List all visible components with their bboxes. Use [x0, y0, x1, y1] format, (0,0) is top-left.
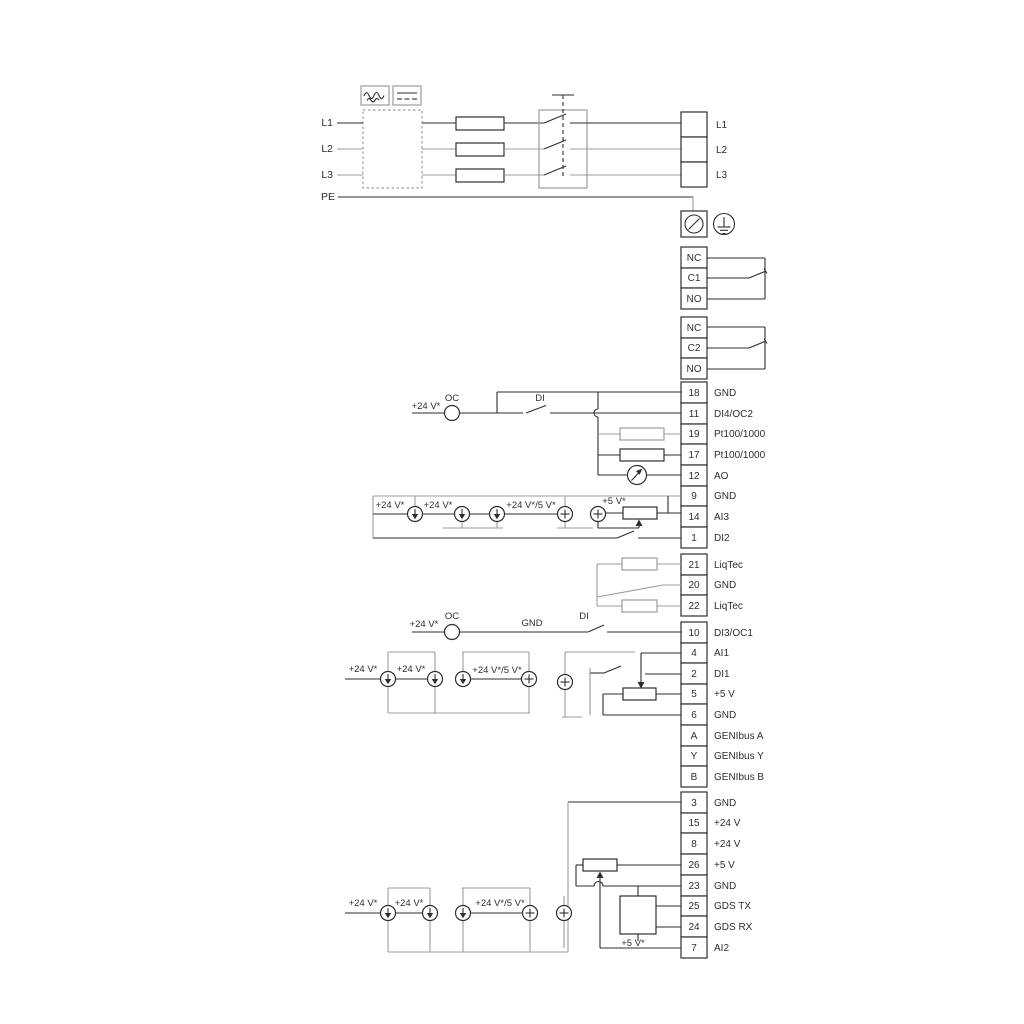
di3-oc1-circuit: +24 V* OC GND DI — [410, 611, 681, 640]
liqtec-circuit — [597, 558, 681, 612]
v5-label: +5 V* — [621, 938, 645, 949]
ai2-gds-circuit: +24 V* +24 V* +24 V*/5 V* +5 V* — [345, 802, 681, 952]
terminal-block-group4: 3GND 15+24 V 8+24 V 26+5 V 23GND 25GDS T… — [681, 792, 753, 958]
current-source-icon — [381, 906, 396, 921]
terminal-block-group1: 18GND 11DI4/OC2 19Pt100/1000 17Pt100/100… — [681, 382, 766, 548]
terminal-label: GND — [714, 491, 736, 502]
terminal-number: 21 — [688, 560, 700, 571]
v24-label: +24 V* — [410, 619, 439, 630]
current-source-icon — [456, 672, 471, 687]
terminal-number: 7 — [691, 943, 697, 954]
terminal-label: GDS RX — [714, 922, 753, 933]
oc-circle-icon — [445, 625, 460, 640]
oc-label: OC — [445, 393, 459, 404]
voltage-source-icon — [523, 906, 538, 921]
di2-switch — [617, 531, 634, 538]
terminal-number: B — [691, 772, 698, 783]
current-source-icon — [456, 906, 471, 921]
pin-label-l1: L1 — [321, 117, 333, 129]
terminal-number: 18 — [688, 388, 700, 399]
v5-label: +5 V* — [602, 496, 626, 507]
terminal-number: 26 — [688, 860, 700, 871]
voltage-source-icon — [557, 906, 572, 921]
v24-label: +24 V* — [349, 898, 378, 909]
terminal-label: AI3 — [714, 512, 729, 523]
relay2-contact — [707, 327, 767, 369]
terminal-label: DI4/OC2 — [714, 409, 753, 420]
terminal-number: NC — [687, 253, 701, 264]
terminal-label: +24 V — [714, 818, 741, 829]
terminal-number: 20 — [688, 580, 700, 591]
terminal-number: 8 — [691, 839, 697, 850]
terminal-label: LiqTec — [714, 560, 743, 571]
di-switch — [526, 406, 546, 414]
potentiometer-icon — [583, 859, 617, 871]
pt100-sensor-2 — [598, 449, 681, 461]
current-source-icon — [381, 672, 396, 687]
terminal-number: 2 — [691, 669, 697, 680]
terminal-label: GND — [714, 881, 736, 892]
v24-label: +24 V* — [349, 664, 378, 675]
terminal-number: 24 — [688, 922, 700, 933]
potentiometer-icon — [623, 507, 657, 519]
oc-circle-icon — [445, 406, 460, 421]
terminal-number: 25 — [688, 901, 700, 912]
resistor-icon — [620, 449, 664, 461]
terminal-label: L3 — [716, 170, 728, 181]
pin-label-l3: L3 — [321, 169, 333, 181]
di-switch — [588, 625, 604, 632]
terminal-label: GDS TX — [714, 901, 751, 912]
gnd-label: GND — [521, 618, 542, 629]
current-source-icon — [428, 672, 443, 687]
fuse-l3 — [456, 169, 504, 182]
terminal-label: GENIbus Y — [714, 751, 764, 762]
current-source-icon — [408, 507, 423, 522]
gnd-wire-with-hop — [576, 882, 681, 887]
wiring-diagram-page: L1 L2 L3 PE — [0, 0, 1024, 1024]
resistor-icon — [622, 600, 657, 612]
v24-label: +24 V* — [397, 664, 426, 675]
terminal-number: 17 — [688, 450, 700, 461]
terminal-label: GND — [714, 388, 736, 399]
terminal-label: GENIbus B — [714, 772, 764, 783]
terminal-number: 23 — [688, 881, 700, 892]
di1-switch — [604, 666, 621, 673]
terminal-number: 5 — [691, 689, 697, 700]
terminal-number: 15 — [688, 818, 700, 829]
resistor-icon — [620, 428, 664, 440]
terminal-label: Pt100/1000 — [714, 429, 766, 440]
terminal-number: NO — [687, 364, 702, 375]
terminal-label: +5 V — [714, 689, 735, 700]
terminal-number: 1 — [691, 533, 697, 544]
ao-meter — [598, 466, 681, 485]
wiring-diagram: L1 L2 L3 PE — [0, 0, 1024, 1024]
terminal-label: AI2 — [714, 943, 729, 954]
wiper-arrow-icon — [636, 520, 643, 527]
terminal-label: Pt100/1000 — [714, 450, 766, 461]
terminal-number: 9 — [691, 491, 697, 502]
terminal-label: +5 V — [714, 860, 735, 871]
voltage-source-icon — [522, 672, 537, 687]
di-label: DI — [579, 611, 589, 622]
terminal-label: AI1 — [714, 648, 729, 659]
v24-label: +24 V* — [395, 898, 424, 909]
pe-terminal — [681, 211, 707, 237]
fuse-l2 — [456, 143, 504, 156]
current-source-icon — [455, 507, 470, 522]
potentiometer-icon — [623, 688, 656, 700]
terminal-label: LiqTec — [714, 601, 743, 612]
relay1-block: NC C1 NO — [681, 247, 767, 309]
terminal-label: DI1 — [714, 669, 730, 680]
v24-label: +24 V* — [376, 500, 405, 511]
terminal-block-group3: 10DI3/OC1 4AI1 2DI1 5+5 V 6GND AGENIbus … — [681, 622, 764, 787]
pin-label-l2: L2 — [321, 143, 333, 155]
voltage-source-icon — [558, 675, 573, 690]
rcd-box — [361, 86, 422, 188]
ac-symbol-box — [361, 86, 389, 105]
terminal-number: 22 — [688, 601, 700, 612]
relay1-contact — [707, 258, 767, 299]
terminal-label: +24 V — [714, 839, 741, 850]
terminal-number: 6 — [691, 710, 697, 721]
terminal-label: GENIbus A — [714, 731, 764, 742]
pin-label-pe: PE — [321, 191, 335, 203]
terminal-number: 4 — [691, 648, 697, 659]
mains-output-terminal-block: L1 L2 L3 — [681, 112, 728, 187]
terminal-label: L2 — [716, 145, 728, 156]
voltage-source-icon — [558, 507, 573, 522]
pt100-sensor-1 — [598, 428, 681, 440]
terminal-label: DI3/OC1 — [714, 628, 753, 639]
liqtec-terminal-block: 21LiqTec 20GND 22LiqTec — [681, 554, 743, 616]
terminal-label: GND — [714, 798, 736, 809]
earth-ground-icon — [714, 214, 735, 235]
v24-v5-label: +24 V*/5 V* — [475, 898, 525, 909]
fuse-l1 — [456, 117, 504, 130]
terminal-number: NC — [687, 323, 701, 334]
terminal-number: 3 — [691, 798, 697, 809]
terminal-number: Y — [691, 751, 698, 762]
v24-label: +24 V* — [424, 500, 453, 511]
terminal-label: DI2 — [714, 533, 730, 544]
terminal-number: NO — [687, 294, 702, 305]
v24-label: +24 V* — [412, 401, 441, 412]
v24-v5-label: +24 V*/5 V* — [472, 665, 522, 676]
terminal-number: 11 — [689, 409, 700, 420]
ai3-di2-circuit: +24 V* +24 V* +24 V*/5 V* +5 V* — [373, 496, 681, 538]
terminal-number: C2 — [688, 343, 701, 354]
terminal-number: A — [691, 731, 698, 742]
terminal-number: C1 — [688, 273, 701, 284]
gds-sensor-box: +5 V* — [620, 886, 681, 949]
voltage-source-icon — [591, 507, 606, 522]
v24-v5-label: +24 V*/5 V* — [506, 500, 556, 511]
terminal-number: 19 — [688, 429, 700, 440]
wiper-arrow-icon — [597, 872, 604, 879]
terminal-number: 14 — [688, 512, 700, 523]
oc-label: OC — [445, 611, 459, 622]
disconnect-switch — [539, 95, 587, 188]
terminal-number: 12 — [688, 471, 700, 482]
current-source-icon — [490, 507, 505, 522]
relay2-block: NC C2 NO — [681, 317, 767, 379]
terminal-number: 10 — [688, 628, 700, 639]
ai1-di1-circuit: +24 V* +24 V* +24 V*/5 V* — [345, 652, 681, 717]
terminal-label: GND — [714, 580, 736, 591]
mains-wiring — [337, 95, 693, 211]
terminal-label: L1 — [716, 120, 728, 131]
terminal-label: AO — [714, 471, 729, 482]
current-source-icon — [423, 906, 438, 921]
di-label: DI — [535, 393, 545, 404]
terminal-label: GND — [714, 710, 736, 721]
resistor-icon — [622, 558, 657, 570]
mains-input-labels: L1 L2 L3 PE — [321, 117, 335, 203]
dc-symbol-box — [393, 86, 421, 105]
